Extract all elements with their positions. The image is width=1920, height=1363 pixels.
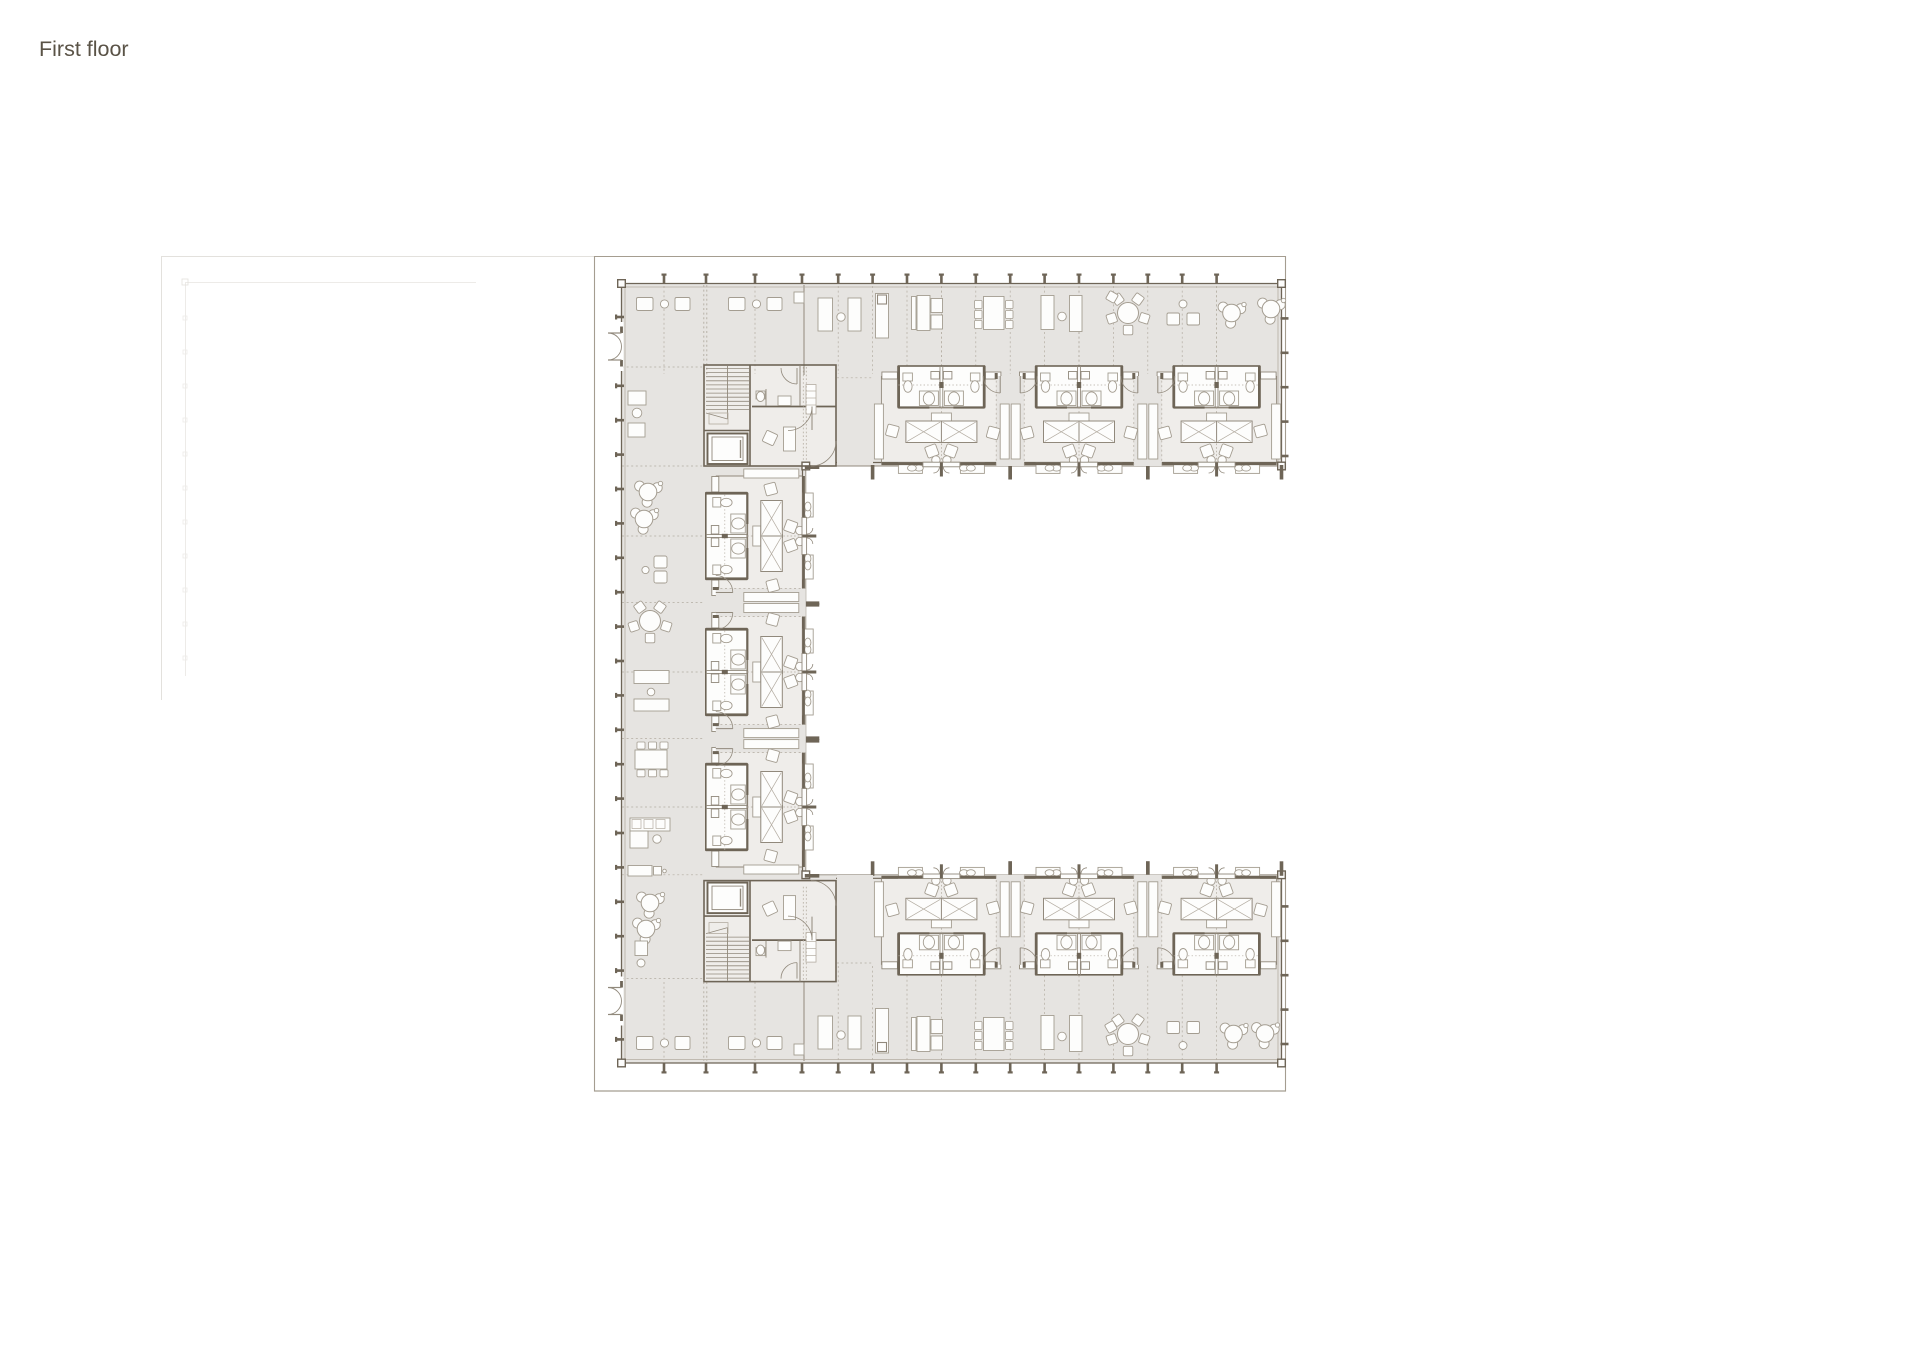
svg-text:First floor: First floor <box>39 37 129 61</box>
